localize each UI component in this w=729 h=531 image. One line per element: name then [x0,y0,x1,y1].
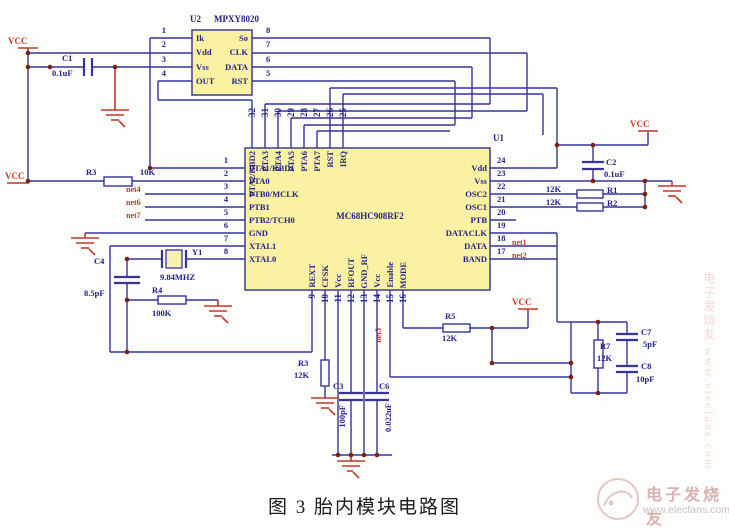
net-label: net2 [512,251,527,261]
u1-pin-label: PTB [385,214,487,227]
watermark-url: www.elecfans.com [643,504,729,516]
u1-pin-label: PTB1 [249,201,349,214]
net-label: net4 [126,185,141,195]
u2-pin-number: 4 [146,66,166,80]
u1-pin-number: 4 [212,193,240,206]
vcc-label-top-left: VCC [8,36,28,46]
u1-pin-number: 5 [212,206,240,219]
vcc-label-right-mid: VCC [512,297,532,307]
u1-pin-number: 22 [497,180,527,193]
u1-pin-number: 29 [285,108,297,117]
u1-pin-number: 14 [371,294,383,303]
u1-pin-label: IRQ [337,151,349,167]
u2-pin-label: DATA [220,60,248,74]
u1-pin-number: 1 [212,154,240,167]
u1-pin-label: RFOUT [345,258,357,288]
c8-value: 10pF [636,374,654,384]
c6-value: 0.022uF [383,403,394,432]
u1-pin-number: 23 [497,167,527,180]
net-label: net1 [512,238,527,248]
u2-part-number: MPXY8020 [214,14,259,24]
c4-value: 8.5pF [84,288,105,298]
watermark-side-text: 电子发烧友 www.elecfans.com [701,272,718,470]
c4-ref: C4 [94,256,104,266]
vcc-label-left-mid: VCC [5,171,25,181]
u1-pin-number: 19 [497,219,527,232]
u1-pin-label: PTA7 [311,151,323,172]
u1-pin-number: 28 [298,108,310,117]
u2-pin-label: So [220,31,248,45]
r1-value: 12K [546,184,561,194]
r7-value: 12K [597,353,612,363]
u1-pin-number: 12 [345,294,357,303]
u1-pin-label: PTA5 [285,151,297,172]
u2-left-pin-labels: IkVddVssOUT [196,31,222,88]
u2-pin-label: CLK [220,45,248,59]
u1-pin-number: 27 [311,108,323,117]
u1-pin-label: Vdd [385,162,487,175]
r3b-value: 12K [294,370,309,380]
u1-pin-label: DATA [385,240,487,253]
net-label: net6 [126,198,141,208]
r3-ref: R3 [86,167,96,177]
r5-value: 12K [442,333,457,343]
u1-pin-label: PTA4 [272,151,284,172]
u1-pin-label: PTB0/MCLK [249,188,349,201]
u1-pin-number: 16 [397,294,409,303]
u1-pin-label: PTA6 [298,151,310,172]
u1-pin-label: DATACLK [385,227,487,240]
u1-pin-label: PTA0 [249,175,349,188]
u1-pin-number: 24 [497,154,527,167]
u1-right-pin-labels: VddVssOSC2OSC1PTBDATACLKDATABAND [385,162,487,266]
r3b-ref: R3 [298,358,308,368]
u2-pin-label: Vss [196,60,222,74]
u2-pin-label: Vdd [196,45,222,59]
r3-value: 10K [140,167,155,177]
u1-pin-number: 20 [497,206,527,219]
c1-value: 0.1uF [52,68,73,78]
u1-pin-number: 11 [332,294,344,303]
u1-pin-number: 25 [337,108,349,117]
u1-pin-number: 3 [212,180,240,193]
u1-pin-number: 9 [306,294,318,299]
u2-pin-number: 2 [146,37,166,51]
r1-ref: R1 [607,185,617,195]
r2-value: 12K [546,197,561,207]
schematic-canvas: U2 MPXY8020 IkVddVssOUT SoCLKDATARST 123… [0,0,729,531]
u1-pin-label: XTAL1 [249,240,349,253]
c3-ref: C3 [333,381,343,391]
u1-pin-number: 30 [272,108,284,117]
figure-caption: 图 3 胎内模块电路图 [0,492,729,519]
u1-pin-number: 32 [246,108,258,117]
u1-pin-label: Vcc [332,274,344,288]
u1-ref: U1 [493,133,504,143]
net-label: net5 [373,328,384,343]
r5-ref: R5 [445,311,455,321]
r2-ref: R2 [607,198,617,208]
vcc-label-right-top: VCC [630,119,650,129]
u1-pin-label: OSC1 [385,201,487,214]
u2-pin-number: 7 [266,37,286,51]
u1-pin-number: 26 [324,108,336,117]
u1-pin-label: PTA3 [259,151,271,172]
u1-pin-label: Vss [385,175,487,188]
c8-ref: C8 [641,361,651,371]
u1-pin-number: 6 [212,219,240,232]
u1-pin-label: GND [249,227,349,240]
c2-ref: C2 [606,157,616,167]
u1-pin-number: 15 [384,294,396,303]
u1-pin-label: OSC2 [385,188,487,201]
u1-pin-number: 21 [497,193,527,206]
u1-pin-label: MODE [397,262,409,288]
u1-pin-label: Enable [384,262,396,288]
y1-value: 9.84MHZ [160,272,195,282]
c1-ref: C1 [62,53,72,63]
u1-pin-number: 13 [358,294,370,303]
u1-left-pin-labels: PTA1/KBD1PTA0PTB0/MCLKPTB1PTB2/TCH0GNDXT… [249,162,349,266]
u1-pin-label: PTA2/KBD2 [246,151,258,197]
u1-pin-label: XTAL0 [249,253,349,266]
u1-pin-label: Vcc [371,274,383,288]
u2-pin-label: RST [220,74,248,88]
u2-pin-number: 3 [146,52,166,66]
c7-ref: C7 [641,327,651,337]
u2-pin-label: OUT [196,74,222,88]
y1-ref: Y1 [192,247,202,257]
net-label: net7 [126,211,141,221]
u2-right-pin-labels: SoCLKDATARST [220,31,248,88]
c6-ref: C6 [379,381,389,391]
c3-value: 100pF [337,405,348,428]
u2-ref: U2 [190,14,201,24]
u1-left-pin-numbers: 12345678 [212,154,240,258]
r4-value: 100K [152,308,171,318]
u1-pin-number: 10 [319,294,331,303]
u1-pin-label: CFSK [319,265,331,288]
u2-pin-label: Ik [196,31,222,45]
u2-pin-number: 6 [266,52,286,66]
u1-pin-label: REXT [306,264,318,288]
c2-value: 0.1uF [604,169,625,179]
u1-pin-label: RST [324,151,336,168]
u1-pin-label: PTB2/TCH0 [249,214,349,227]
u2-pin-number: 5 [266,66,286,80]
u1-pin-label: GND_RF [358,254,370,288]
u1-pin-number: 8 [212,245,240,258]
u1-pin-number: 7 [212,232,240,245]
u2-left-pin-numbers: 1234 [146,23,166,80]
crystal-y1 [166,250,182,268]
r4-ref: R4 [152,285,162,295]
u1-pin-number: 31 [259,108,271,117]
u1-pin-number: 2 [212,167,240,180]
r7-ref: R7 [600,341,610,351]
u2-right-pin-numbers: 8765 [266,23,286,80]
u2-pin-number: 8 [266,23,286,37]
c7-value: 5pF [643,339,657,349]
u2-pin-number: 1 [146,23,166,37]
